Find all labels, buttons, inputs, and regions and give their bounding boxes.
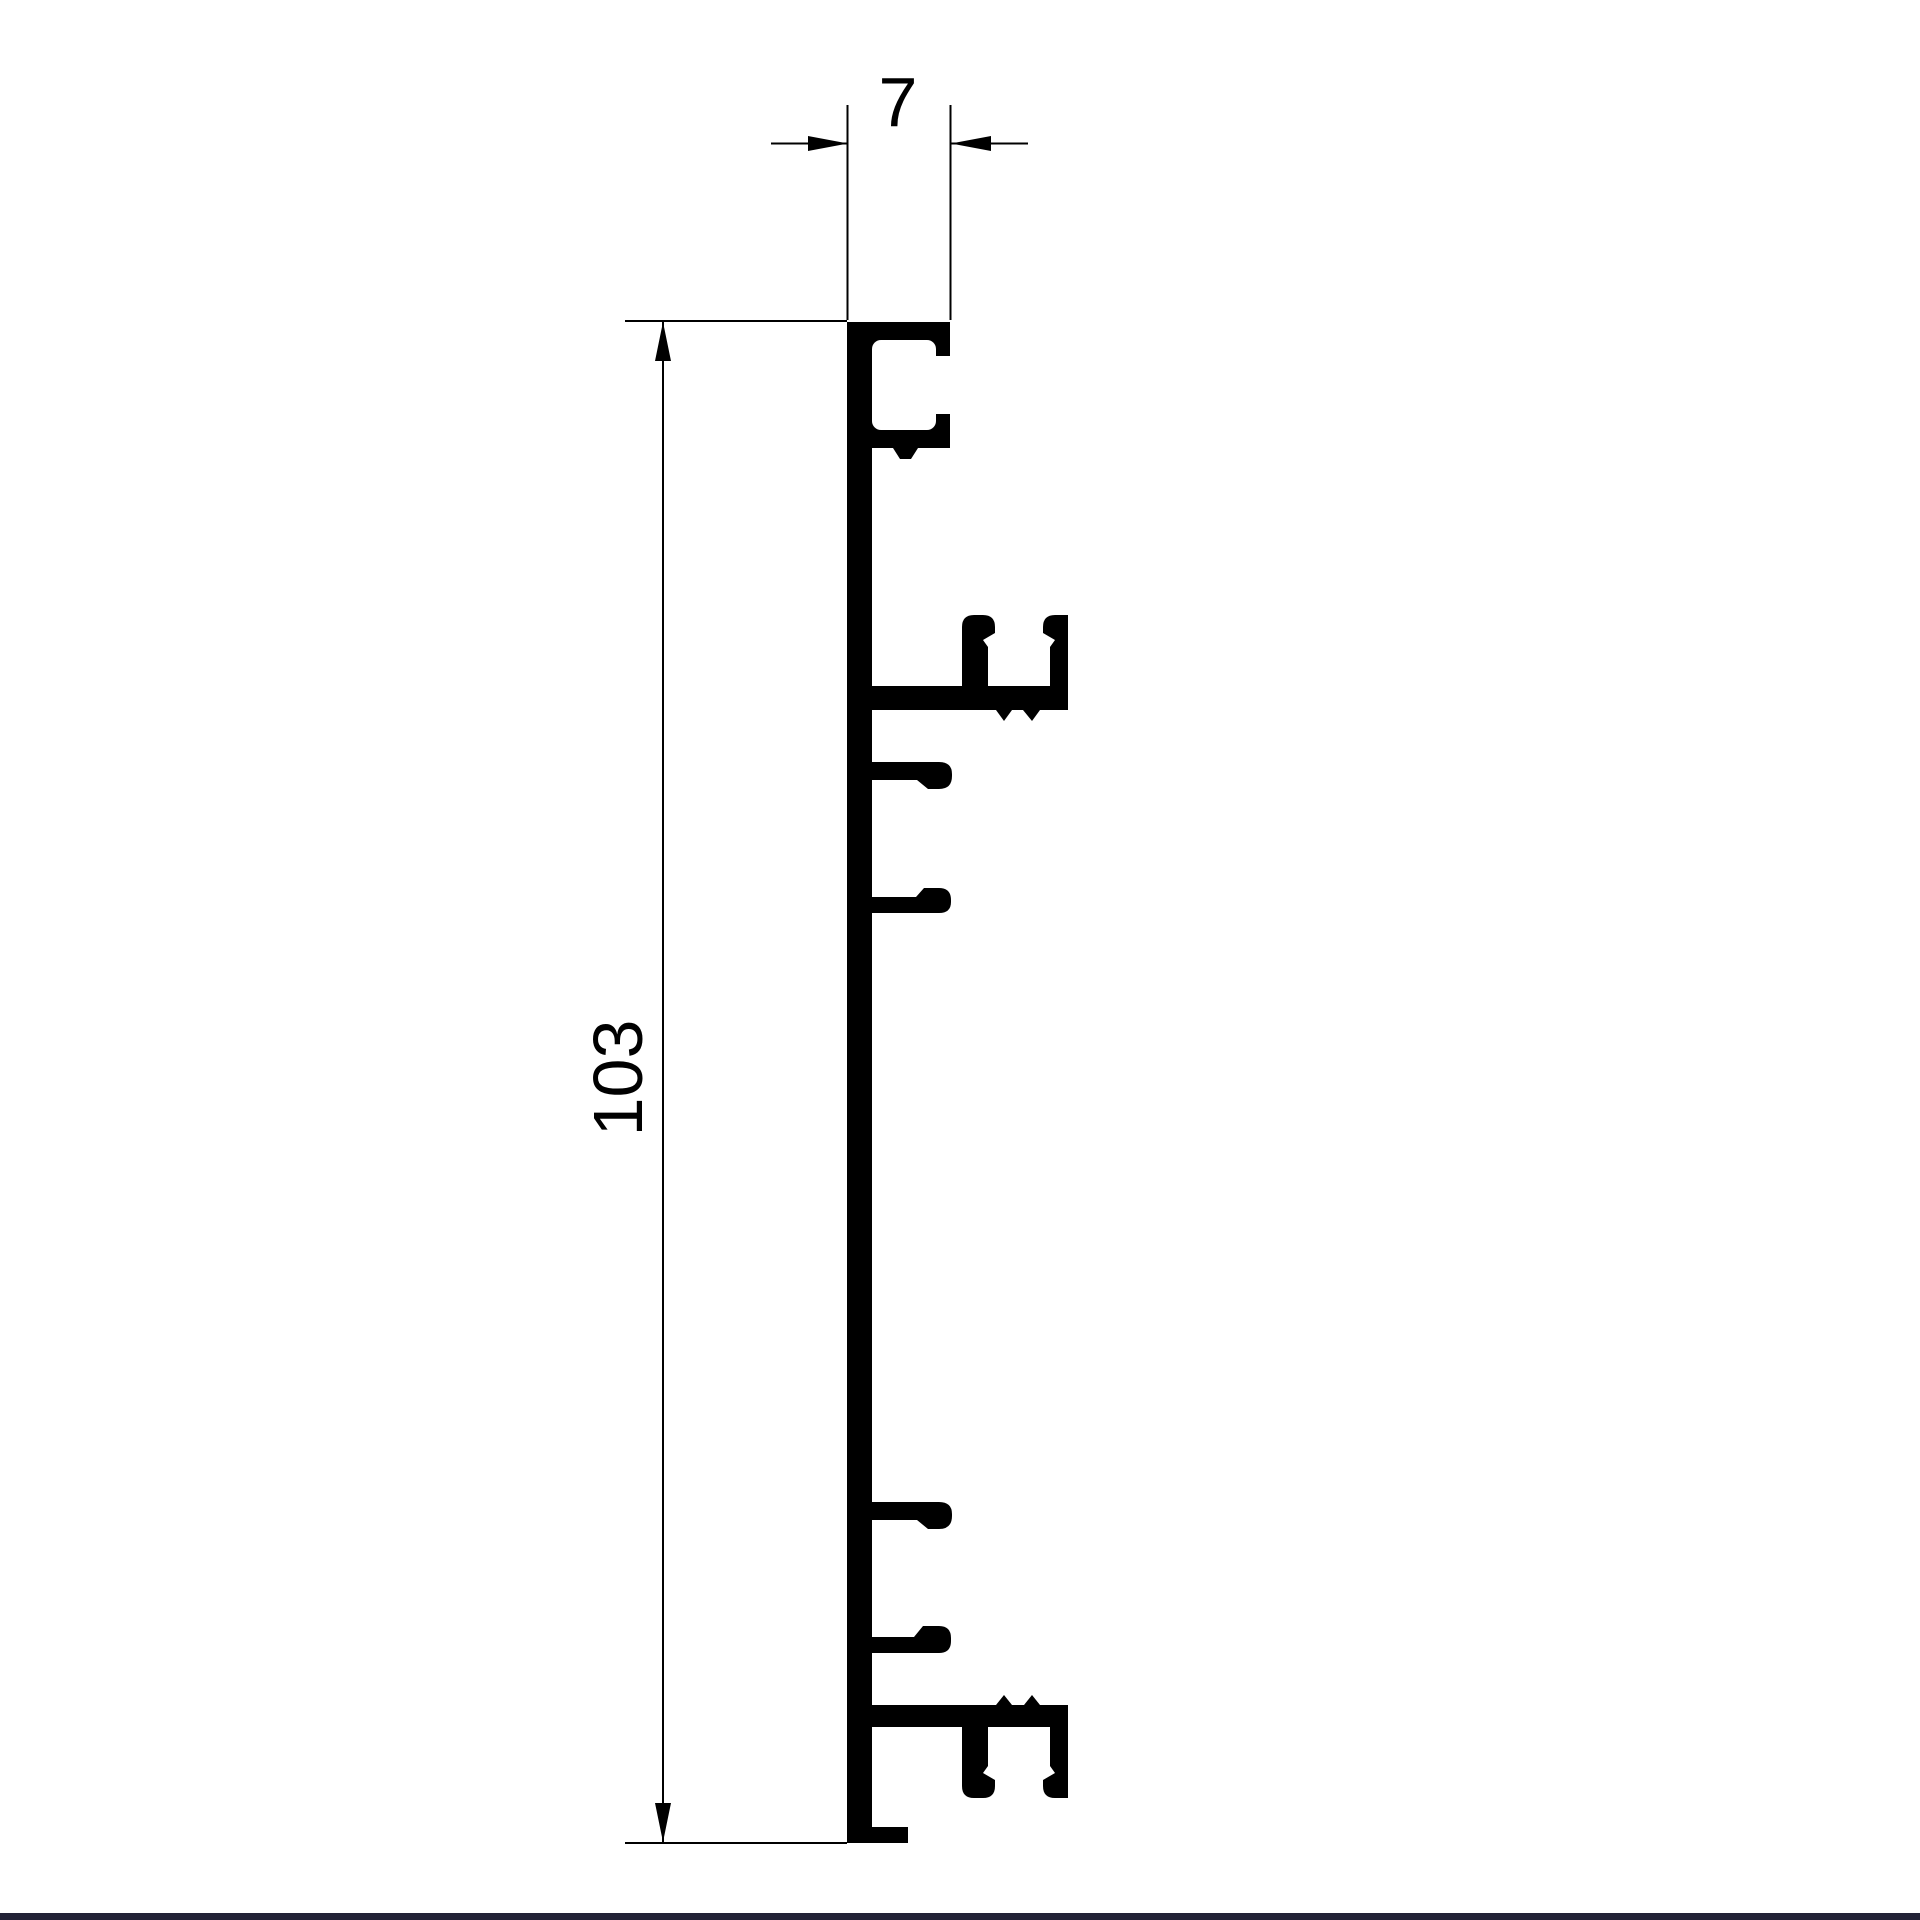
height-dimension-label: 103 [579, 1020, 657, 1137]
profile-nub-arm-up [872, 888, 951, 913]
width-dimension-label: 7 [879, 63, 918, 141]
profile-top-channel-cavity [872, 340, 936, 430]
technical-drawing-canvas: 7 103 [0, 0, 1920, 1920]
profile-hook-arm-down [872, 762, 952, 789]
profile-hook-arm-down [872, 1502, 952, 1529]
height-dimension-annotation: 103 [579, 321, 847, 1843]
profile-main-wall [847, 322, 872, 1843]
profile-serration-tooth [996, 1695, 1012, 1705]
profile-serration-tooth [1023, 710, 1040, 721]
profile-nub-arm-up [872, 1626, 951, 1653]
arrowhead-left-icon [951, 136, 991, 151]
profile-lower-channel-left-prong [962, 1727, 995, 1798]
extrusion-profile-drawing: 7 103 [0, 0, 1920, 1920]
width-dimension-annotation: 7 [771, 63, 1028, 320]
arrowhead-down-icon [655, 1803, 671, 1842]
profile-serration-tooth [1024, 1695, 1040, 1705]
arrowhead-right-icon [808, 136, 848, 151]
profile-top-channel-mouth [936, 356, 954, 414]
profile-lower-channel-right-prong [1043, 1727, 1068, 1798]
profile-serration-tooth [996, 710, 1012, 721]
bottom-border-line [0, 1913, 1920, 1920]
profile-lower-channel-arm [872, 1705, 1068, 1727]
profile-bottom-foot [847, 1827, 908, 1843]
profile-upper-channel-arm [872, 686, 1068, 710]
profile-serration-tooth [893, 448, 918, 459]
extrusion-profile-shape [847, 322, 1068, 1843]
profile-upper-channel-left-prong [962, 615, 995, 686]
arrowhead-up-icon [655, 322, 671, 361]
profile-upper-channel-right-prong [1043, 615, 1068, 686]
